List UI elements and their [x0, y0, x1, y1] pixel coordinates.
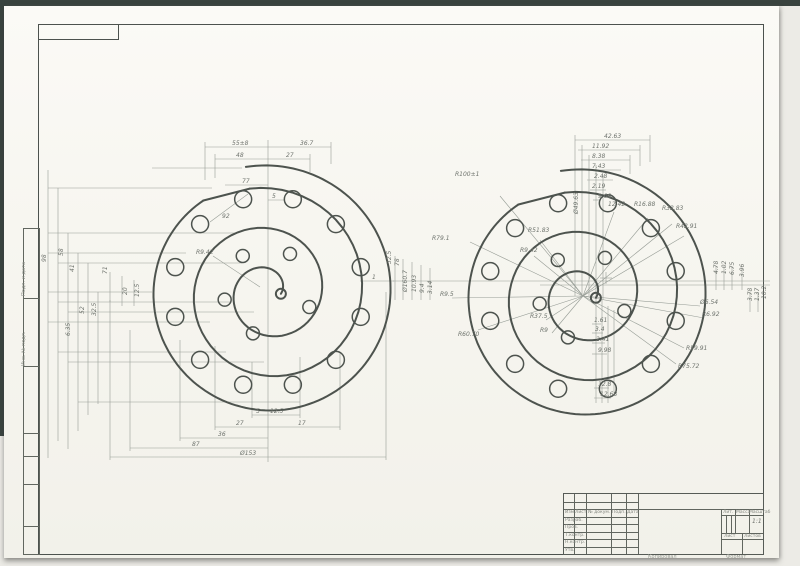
dimension-label: 9.4 — [419, 283, 426, 293]
dimension-label: 12.8 — [598, 381, 612, 388]
titleblock-grid-line — [638, 494, 639, 554]
dimension-label: R16.88 — [634, 201, 656, 208]
inner-hole — [618, 305, 631, 318]
titleblock-col-izm: Изм. — [565, 510, 576, 515]
dimension-label: R9.42 — [520, 247, 538, 254]
dimension-label: 10.93 — [411, 275, 418, 292]
bolt-hole — [550, 380, 567, 397]
bolt-hole — [327, 216, 344, 233]
inner-hole — [218, 293, 231, 306]
titleblock-scale-value: 1:1 — [752, 519, 762, 524]
dimension-label: 1 — [372, 274, 376, 281]
dimension-label: 55±8 — [232, 140, 249, 147]
titleblock-grid-line — [742, 533, 743, 554]
radial-line — [452, 296, 583, 298]
bolt-hole — [235, 191, 252, 208]
titleblock-grid-line — [731, 515, 732, 533]
dimension-label: 52 — [79, 306, 86, 314]
dimension-label: 20 — [122, 287, 129, 295]
dimension-label: R60.70 — [458, 331, 480, 338]
dimension-label: 36.7 — [300, 140, 314, 147]
dimension-label: 9.98 — [598, 347, 612, 354]
dimension-label: 41 — [69, 264, 76, 272]
titleblock-row-nkontr: Н.контр. — [565, 540, 585, 545]
titleblock-row-razrab: Разраб. — [565, 518, 583, 523]
inner-hole — [284, 247, 297, 260]
dimension-label: 3.14 — [427, 280, 434, 294]
bolt-hole — [235, 376, 252, 393]
dimension-label: R79.1 — [432, 235, 450, 242]
dimension-label: 48 — [236, 152, 244, 159]
dimension-label: 1.61 — [594, 317, 607, 324]
dimension-label: 3.96 — [739, 263, 746, 277]
titleblock-grid-line — [564, 502, 638, 503]
dimension-label: 32.5 — [91, 302, 98, 316]
dimension-label: R42.91 — [676, 223, 697, 230]
inner-hole — [236, 249, 249, 262]
titleblock-scale-label: Масштаб — [749, 510, 770, 515]
titleblock-col-ndokum: № докум. — [588, 510, 610, 515]
dimension-label: Ø153 — [239, 450, 256, 457]
dimension-label: 5 — [272, 193, 276, 200]
titleblock-lit-label: Лит. — [723, 510, 733, 515]
dimension-label: 7.43 — [592, 163, 606, 170]
bolt-hole — [192, 351, 209, 368]
titleblock-col-podp: Подп. — [612, 510, 626, 515]
dimension-label: 8.38 — [592, 153, 606, 160]
dimension-label: 17 — [298, 420, 306, 427]
bolt-hole — [167, 259, 184, 276]
dimension-label: 87 — [192, 441, 200, 448]
dimension-label: 6.75 — [729, 261, 736, 275]
bolt-hole — [642, 220, 659, 237]
titleblock-grid-line — [564, 547, 638, 548]
inner-hole — [303, 301, 316, 314]
dimension-label: R32.83 — [662, 205, 684, 212]
dimension-label: 12.5 — [270, 408, 284, 415]
dimension-label: R9.42 — [196, 249, 214, 256]
bolt-hole — [507, 220, 524, 237]
dimension-label: 71 — [102, 266, 109, 274]
bolt-hole — [482, 263, 499, 280]
dimension-label: 1.37 — [754, 287, 761, 301]
inner-hole — [533, 297, 546, 310]
dimension-label: Ø160.7 — [402, 270, 409, 293]
bolt-hole — [352, 308, 369, 325]
dimension-label: 27 — [236, 420, 244, 427]
dimension-label: 2.19 — [592, 183, 606, 190]
dimension-label: 12.5 — [134, 283, 141, 297]
dimension-label: 3.4 — [595, 326, 605, 333]
dimension-label: 4.78 — [713, 260, 720, 274]
radial-line — [540, 240, 583, 296]
title-block: Изм. Лист № докум. Подп. Дата Разраб. Пр… — [563, 493, 764, 555]
dimension-label: R9 — [540, 327, 548, 334]
dimension-label: 78 — [394, 258, 401, 266]
radial-line — [583, 218, 648, 296]
dimension-label: 9.08 — [598, 193, 612, 200]
bolt-hole — [507, 355, 524, 372]
titleblock-row-prov: Пров. — [565, 525, 578, 530]
footer-format: Формат — [726, 554, 746, 560]
dimension-label: 36 — [218, 431, 226, 438]
titleblock-row-utv: Утв. — [565, 548, 574, 553]
bolt-hole — [284, 376, 301, 393]
dimension-label: 98 — [41, 254, 48, 262]
dimension-label: 3.78 — [747, 287, 754, 301]
titleblock-grid-line — [721, 515, 763, 516]
bolt-hole — [550, 195, 567, 212]
dimension-label: 10.2 — [761, 285, 768, 299]
titleblock-row-tkontr: Т.контр. — [565, 533, 585, 538]
inner-hole — [599, 251, 612, 264]
drawing-canvas: 55±836.7482777592R9.42512.527173687Ø1531… — [0, 0, 800, 566]
bolt-hole — [667, 312, 684, 329]
dimension-label: 2.41 — [596, 336, 609, 343]
radial-line — [552, 296, 583, 333]
dimension-label: 12.42 — [608, 201, 625, 208]
dimension-label: 42.63 — [604, 133, 621, 140]
dimension-label: 92 — [222, 213, 230, 220]
dimension-label: R75.72 — [678, 363, 700, 370]
dimension-label: 1.02 — [721, 260, 728, 274]
dimension-label: 11.92 — [592, 143, 609, 150]
dimension-label: 27 — [286, 152, 294, 159]
dimension-label: R6.92 — [702, 311, 720, 318]
bolt-hole — [192, 216, 209, 233]
dimension-label: R37.5 — [530, 313, 548, 320]
dimension-label: 58 — [58, 248, 65, 256]
dimension-label: Ø6.54 — [699, 299, 718, 306]
dimension-label: R51.83 — [528, 227, 550, 234]
bolt-hole — [327, 351, 344, 368]
dimension-label: 12.68 — [600, 391, 617, 398]
dimension-label: 6.35 — [65, 322, 72, 336]
scroll-outer-spiral — [154, 165, 391, 410]
bolt-hole — [482, 312, 499, 329]
dimension-label: R59.91 — [686, 345, 707, 352]
dimension-label: 2.48 — [594, 173, 608, 180]
bolt-hole — [642, 355, 659, 372]
bolt-hole — [167, 308, 184, 325]
dimension-label: 32.5 — [386, 250, 393, 264]
titleblock-sheets-label: Листов — [744, 534, 761, 539]
titleblock-grid-line — [726, 515, 727, 533]
titleblock-sheet-label: Лист — [724, 534, 735, 539]
titleblock-col-list: Лист — [575, 510, 586, 515]
dimension-label: 5 — [256, 408, 260, 415]
dimension-label: 77 — [242, 178, 250, 185]
footer-kopiroval: Копировал — [648, 554, 677, 560]
dimension-label: R100±1 — [455, 171, 479, 178]
dimension-label: R9.5 — [440, 291, 454, 298]
dimension-label: Ø49.63 — [573, 192, 580, 215]
titleblock-col-data: Дата — [627, 510, 639, 515]
